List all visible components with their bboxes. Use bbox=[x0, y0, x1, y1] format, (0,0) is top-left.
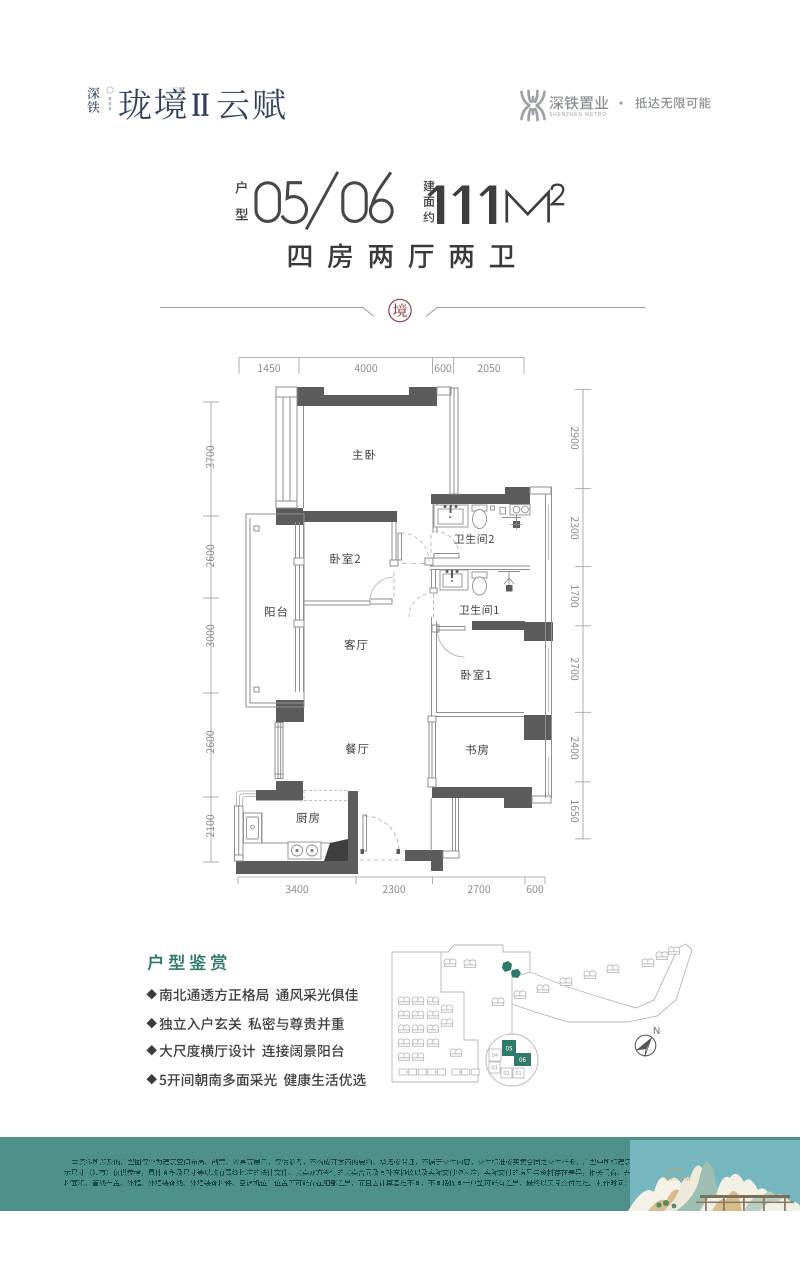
svg-text:JADE: JADE bbox=[665, 1167, 684, 1174]
svg-text:SHENZHEN METRO: SHENZHEN METRO bbox=[549, 112, 607, 118]
svg-text:N: N bbox=[653, 1026, 660, 1037]
svg-text:REALM: REALM bbox=[665, 1176, 692, 1183]
